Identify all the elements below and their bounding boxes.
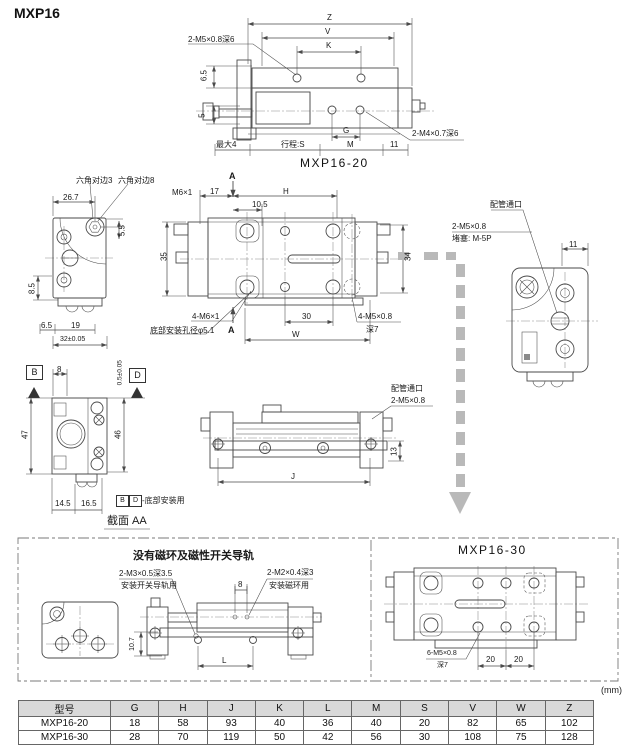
dim-label-z: Z — [327, 13, 332, 22]
col-header-model: 型号 — [19, 701, 111, 717]
gray-arrow — [398, 252, 471, 514]
note-thread-bottom: 2-M4×0.7深6 — [412, 129, 458, 138]
note-bottom-mount: -底部安装用 — [142, 496, 185, 505]
dim-label-8: 8 — [57, 365, 61, 374]
drawing-no-magnet-side-view — [119, 579, 480, 670]
value-cell: 40 — [255, 717, 303, 731]
note-depth7b: 深7 — [437, 662, 448, 670]
value-cell: 58 — [159, 717, 207, 731]
value-cell: 93 — [207, 717, 255, 731]
note-plug: 堵塞: M-5P — [452, 234, 492, 243]
page-title: MXP16 — [14, 5, 60, 21]
value-cell: 119 — [207, 731, 255, 745]
value-cell: 75 — [497, 731, 545, 745]
section-mark-a-bottom: A — [228, 325, 235, 335]
note-mark-d: D — [129, 495, 142, 507]
dim-label-m: M — [347, 140, 354, 149]
value-cell: 42 — [304, 731, 352, 745]
col-header-s: S — [400, 701, 448, 717]
note-hex8: 六角对边8 — [118, 176, 154, 185]
dim-label-47: 47 — [20, 418, 29, 452]
dim-label-w: W — [292, 330, 300, 339]
model-cell: MXP16-20 — [19, 717, 111, 731]
dim-label-stroke: 行程:S — [281, 140, 305, 149]
dim-label-17: 17 — [210, 187, 219, 196]
note-depth7: 深7 — [366, 325, 378, 334]
dim-label-k: K — [326, 41, 331, 50]
table-row: MXP16-30 28 70 119 50 42 56 30 108 75 12… — [19, 731, 594, 745]
technical-drawing-linework — [0, 0, 634, 747]
value-cell: 82 — [449, 717, 497, 731]
value-cell: 40 — [352, 717, 400, 731]
note-rail-thread: 2-M3×0.5深3.5 — [119, 569, 172, 578]
note-rail-use: 安装开关导轨用 — [121, 581, 177, 590]
caption-section-aa: 截面 AA — [107, 515, 147, 528]
value-cell: 56 — [352, 731, 400, 745]
dim-label-10-7: 10.7 — [129, 627, 137, 661]
value-cell: 20 — [400, 717, 448, 731]
units-note: (mm) — [601, 685, 622, 695]
dim-label-16-5: 16.5 — [81, 499, 97, 508]
note-ring-thread: 2-M2×0.4深3 — [267, 568, 313, 577]
value-cell: 128 — [545, 731, 593, 745]
table-header-row: 型号 G H J K L M S V W Z — [19, 701, 594, 717]
dim-label-g: G — [343, 126, 349, 135]
model-cell: MXP16-30 — [19, 731, 111, 745]
col-header-l: L — [304, 701, 352, 717]
col-header-j: J — [207, 701, 255, 717]
dim-label-46: 46 — [113, 418, 122, 452]
dim-label-34: 34 — [403, 240, 412, 274]
col-header-k: K — [255, 701, 303, 717]
dim-label-8b: 8 — [238, 580, 242, 589]
note-port-thread: 2-M5×0.8 — [452, 222, 486, 231]
dim-label-14-5: 14.5 — [55, 499, 71, 508]
dim-label-30: 30 — [302, 312, 311, 321]
dim-label-13: 13 — [389, 435, 398, 469]
dim-label-6-5: 6.5 — [199, 59, 208, 93]
table-row: MXP16-20 18 58 93 40 36 40 20 82 65 102 — [19, 717, 594, 731]
caption-mxp16-20: MXP16-20 — [300, 157, 369, 171]
note-m6: M6×1 — [172, 188, 192, 197]
note-4-m5: 4-M5×0.8 — [358, 312, 392, 321]
dim-label-20b: 20 — [514, 655, 523, 664]
no-magnet-title: 没有磁环及磁性开关导轨 — [133, 550, 254, 563]
value-cell: 108 — [449, 731, 497, 745]
datasheet-page: MXP16 2-M5×0.8深6 Z V K 6.5 5 最大4 行程:S M … — [0, 0, 634, 747]
dim-label-h: H — [283, 187, 289, 196]
note-port2-thread: 2-M5×0.8 — [391, 396, 425, 405]
dim-label-6-5b: 6.5 — [41, 321, 52, 330]
col-header-g: G — [111, 701, 159, 717]
col-header-h: H — [159, 701, 207, 717]
col-header-w: W — [497, 701, 545, 717]
dim-label-l: L — [222, 656, 226, 665]
section-mark-d: D — [129, 368, 146, 383]
note-bottom-hole: 底部安装孔径φ5.1 — [150, 326, 214, 335]
dim-label-19: 19 — [71, 321, 80, 330]
note-port2: 配管通口 — [391, 384, 423, 393]
value-cell: 30 — [400, 731, 448, 745]
dim-label-5-5: 5.5 — [117, 214, 126, 248]
col-header-v: V — [449, 701, 497, 717]
drawing-no-magnet-end-view — [42, 602, 118, 658]
value-cell: 65 — [497, 717, 545, 731]
dim-label-26-7: 26.7 — [63, 193, 79, 202]
value-cell: 70 — [159, 731, 207, 745]
dim-label-20a: 20 — [486, 655, 495, 664]
dim-label-v: V — [325, 27, 330, 36]
note-port: 配管通口 — [490, 200, 522, 209]
col-header-z: Z — [545, 701, 593, 717]
value-cell: 18 — [111, 717, 159, 731]
dim-label-j: J — [291, 472, 295, 481]
section-mark-b: B — [26, 365, 43, 380]
dim-label-35: 35 — [159, 240, 168, 274]
section-mark-a-top: A — [229, 171, 236, 181]
dim-label-11: 11 — [390, 140, 398, 149]
dimension-table: 型号 G H J K L M S V W Z MXP16-20 18 58 93… — [18, 700, 594, 745]
note-hex3: 六角对边3 — [76, 176, 112, 185]
no-magnet-box — [18, 538, 618, 681]
note-ring-use: 安装磁环用 — [269, 581, 309, 590]
caption-mxp16-30: MXP16-30 — [458, 544, 527, 558]
note-6-m5: 6-M5×0.8 — [427, 650, 457, 658]
dim-label-max4: 最大4 — [216, 140, 236, 149]
dim-label-10-5: 10.5 — [252, 200, 268, 209]
value-cell: 50 — [255, 731, 303, 745]
dim-label-8-5: 8.5 — [27, 272, 36, 306]
note-4-m6: 4-M6×1 — [192, 312, 219, 321]
dim-label-5: 5 — [197, 99, 206, 133]
dim-label-32: 32±0.05 — [60, 336, 85, 344]
note-mark-b: B — [116, 495, 129, 507]
value-cell: 36 — [304, 717, 352, 731]
value-cell: 102 — [545, 717, 593, 731]
col-header-m: M — [352, 701, 400, 717]
note-thread-top: 2-M5×0.8深6 — [188, 35, 234, 44]
dim-label-11b: 11 — [569, 240, 577, 249]
dim-label-tol: 0.5±0.05 — [116, 353, 123, 393]
value-cell: 28 — [111, 731, 159, 745]
